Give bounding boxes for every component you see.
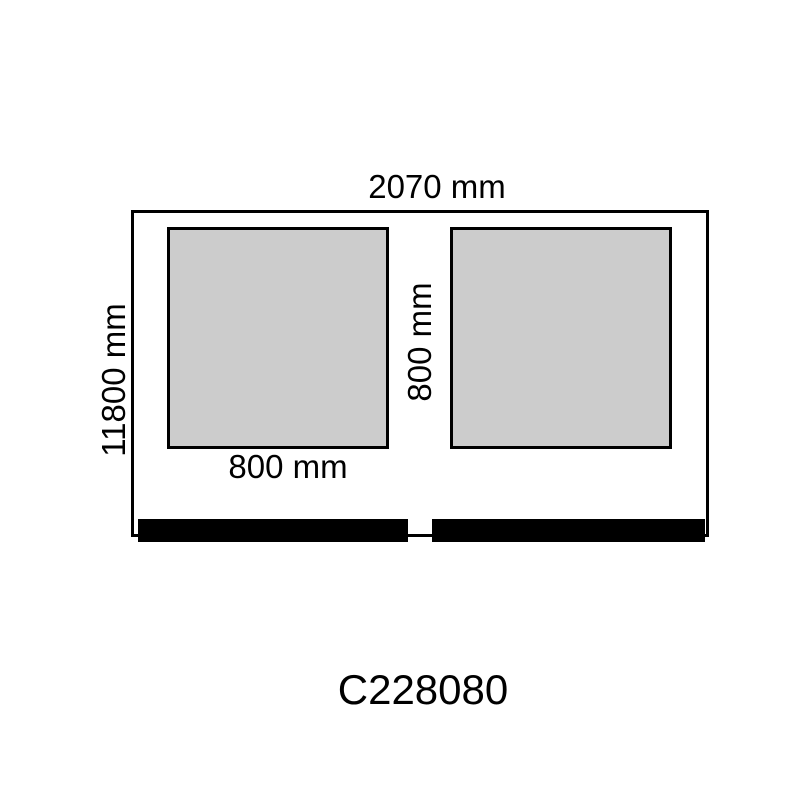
right-panel [450, 227, 672, 449]
dimension-diagram: 2070 mm 11800 mm 800 mm 800 mm C228080 [0, 0, 800, 800]
overall-height-dimension-label: 11800 mm [96, 303, 132, 456]
left-panel [167, 227, 389, 449]
panel-width-dimension-label: 800 mm [228, 449, 347, 485]
left-base-bar [138, 519, 408, 542]
product-code-label: C228080 [338, 666, 508, 714]
overall-width-dimension-label: 2070 mm [368, 169, 506, 205]
right-base-bar [432, 519, 705, 542]
panel-height-dimension-label: 800 mm [402, 282, 438, 401]
